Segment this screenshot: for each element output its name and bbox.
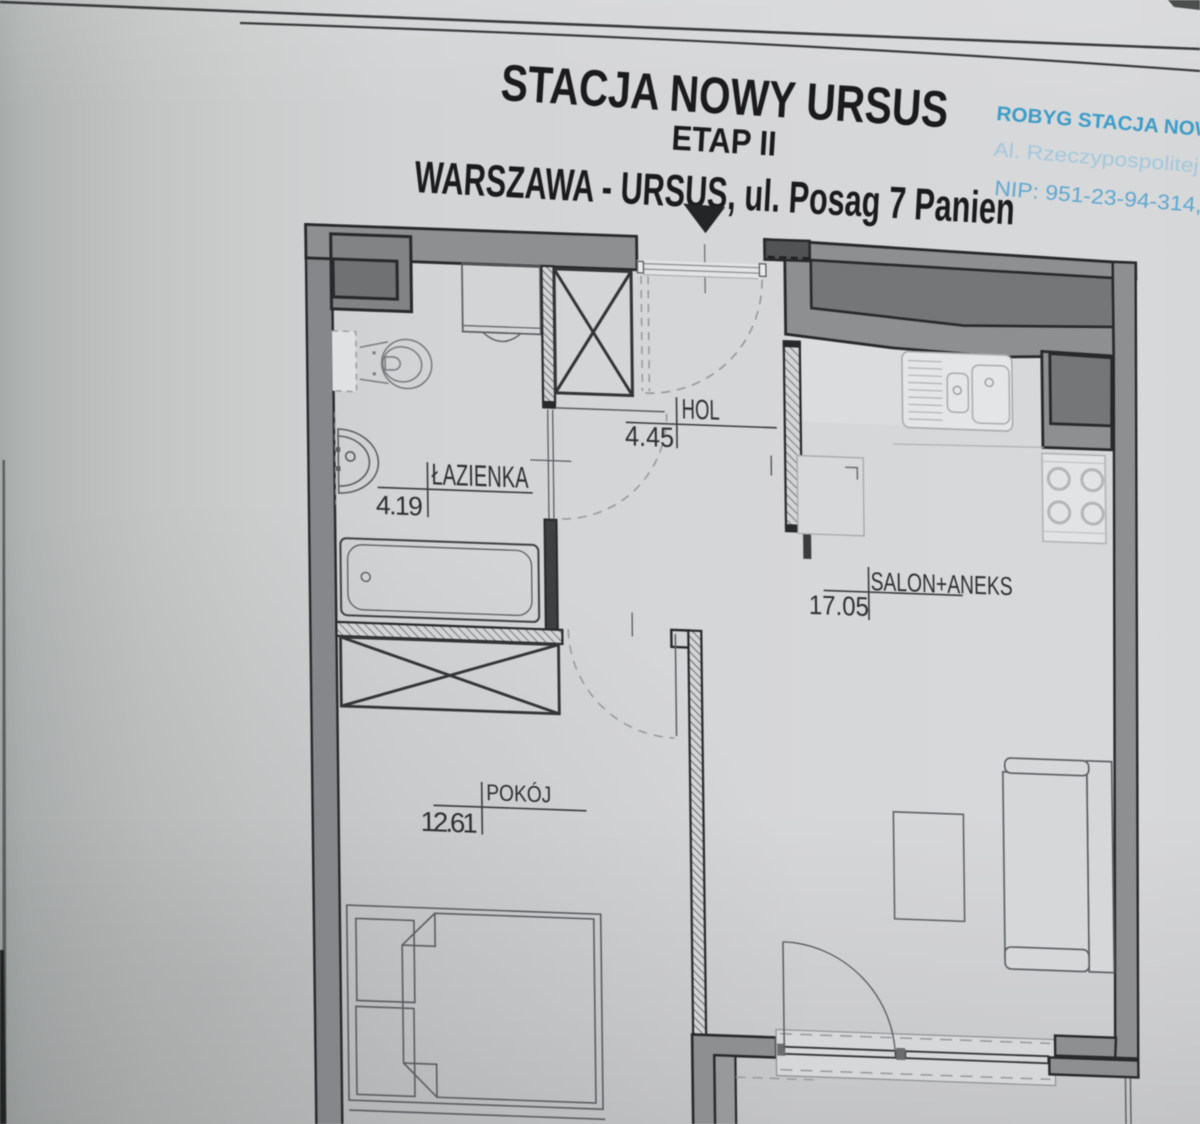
svg-text:4.45: 4.45 xyxy=(625,420,674,453)
svg-text:4.19: 4.19 xyxy=(376,490,423,522)
svg-text:ROBYG STACJA NOWY: ROBYG STACJA NOWY xyxy=(996,103,1200,143)
svg-text:17.05: 17.05 xyxy=(809,590,869,622)
svg-text:ETAP II: ETAP II xyxy=(671,119,778,164)
svg-text:HOL: HOL xyxy=(681,393,719,425)
svg-text:12.61: 12.61 xyxy=(420,806,477,839)
svg-text:POKÓJ: POKÓJ xyxy=(486,779,551,807)
svg-text:Al. Rzeczypospolitej 1: Al. Rzeczypospolitej 1 xyxy=(993,139,1200,179)
svg-text:ŁAZIENKA: ŁAZIENKA xyxy=(431,458,528,494)
svg-text:WARSZAWA - URSUS, ul. Posag 7: WARSZAWA - URSUS, ul. Posag 7 Panien xyxy=(413,151,1016,234)
svg-text:NIP: 951-23-94-314,: NIP: 951-23-94-314, xyxy=(993,177,1200,217)
svg-text:SALON+ANEKS: SALON+ANEKS xyxy=(870,566,1012,601)
